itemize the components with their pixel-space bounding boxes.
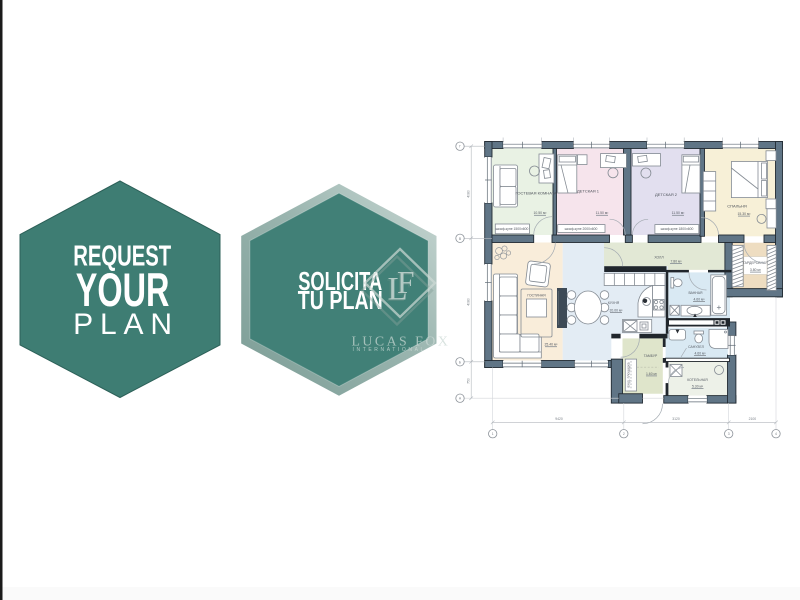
svg-text:ХОЛЛ: ХОЛЛ [654,255,663,259]
svg-text:4.60 м²: 4.60 м² [693,297,705,301]
svg-text:3: 3 [728,432,730,436]
svg-text:1.60 м²: 1.60 м² [646,372,658,376]
svg-text:5.30 м²: 5.30 м² [692,385,704,389]
svg-text:ВАННАЯ: ВАННАЯ [688,291,703,295]
svg-text:4.60 м²: 4.60 м² [694,352,706,356]
svg-text:4080: 4080 [466,190,470,198]
svg-text:750: 750 [466,378,470,384]
svg-text:PLAN: PLAN [73,308,172,341]
svg-text:4: 4 [775,432,777,436]
svg-text:шкаф-купе 2000х600: шкаф-купе 2000х600 [565,227,598,231]
svg-text:25.40 м²: 25.40 м² [545,343,559,347]
svg-text:СПАЛЬНЯ: СПАЛЬНЯ [727,204,747,209]
svg-text:КУХНЯ: КУХНЯ [608,301,620,305]
svg-text:7.80 м²: 7.80 м² [670,260,682,264]
svg-text:2100: 2100 [749,417,757,421]
svg-text:F: F [397,265,415,300]
svg-text:шкаф-купе 1500х600: шкаф-купе 1500х600 [496,227,529,231]
svg-text:11.50 м²: 11.50 м² [596,211,610,215]
svg-text:Г: Г [459,145,461,149]
svg-text:ГОСТЕВАЯ КОМНАТА: ГОСТЕВАЯ КОМНАТА [515,190,556,195]
svg-text:вход. площадка: вход. площадка [627,362,631,387]
svg-text:2: 2 [623,432,625,436]
svg-text:11.50 м²: 11.50 м² [672,211,686,215]
svg-text:3.80 м²: 3.80 м² [750,268,762,272]
svg-text:ГАРДЕРОБНАЯ: ГАРДЕРОБНАЯ [743,261,768,265]
svg-text:3120: 3120 [672,417,680,421]
svg-text:INTERNATIONAL: INTERNATIONAL [353,347,426,353]
svg-text:КОТЕЛЬНАЯ: КОТЕЛЬНАЯ [687,378,708,382]
svg-text:шкаф-купе 1800х600: шкаф-купе 1800х600 [661,227,694,231]
svg-text:20.00 м²: 20.00 м² [610,309,624,313]
svg-text:4080: 4080 [466,298,470,306]
svg-text:ДЕТСКАЯ 1: ДЕТСКАЯ 1 [577,189,600,194]
svg-text:САНУЗЕЛ: САНУЗЕЛ [688,345,704,349]
svg-text:1: 1 [492,432,494,436]
svg-text:10.50 м²: 10.50 м² [534,211,548,215]
svg-text:ДЕТСКАЯ 2: ДЕТСКАЯ 2 [655,192,678,197]
svg-text:ГОСТИНАЯ: ГОСТИНАЯ [527,294,546,298]
svg-text:9420: 9420 [555,417,563,421]
svg-text:ТАМБУР: ТАМБУР [644,354,658,358]
svg-text:15.30 м²: 15.30 м² [738,212,752,216]
